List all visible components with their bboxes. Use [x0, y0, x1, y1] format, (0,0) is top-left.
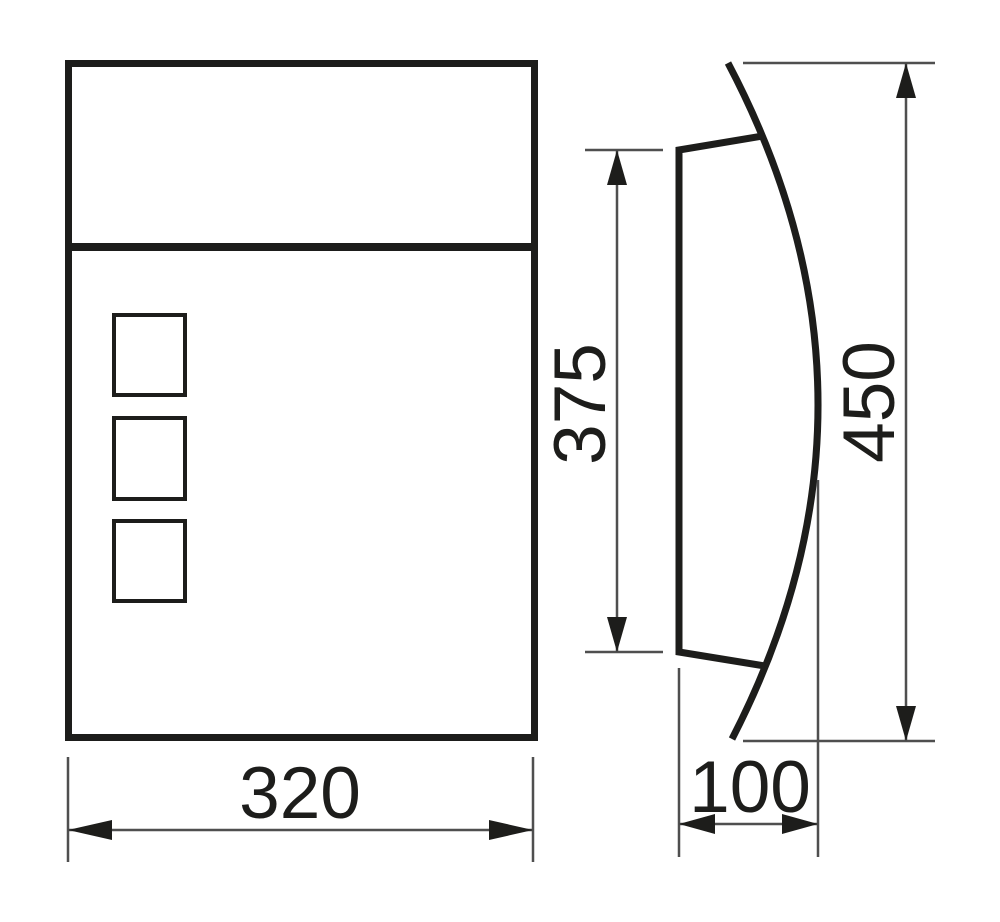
dim-front-width: 320	[68, 753, 533, 862]
side-front-curve	[728, 63, 818, 739]
arrowhead-down-icon	[896, 706, 916, 741]
dim-label-overall-height: 450	[829, 341, 910, 463]
front-view	[66, 64, 537, 738]
arrowhead-up-icon	[607, 150, 627, 185]
front-window-3	[114, 521, 185, 601]
arrowhead-down-icon	[607, 617, 627, 652]
arrowhead-right-icon	[489, 820, 533, 840]
side-view	[679, 63, 818, 739]
mailbox-technical-drawing: 320 375 450 100	[0, 0, 1000, 922]
arrowhead-up-icon	[896, 63, 916, 98]
dim-label-door-height: 375	[540, 343, 621, 465]
front-body-outline	[69, 64, 535, 738]
dim-label-depth: 100	[689, 747, 811, 828]
drawing-svg: 320 375 450 100	[0, 0, 1000, 922]
dim-depth: 100	[679, 480, 818, 857]
side-body-outline	[679, 136, 765, 666]
front-window-1	[114, 315, 185, 395]
dim-door-height: 375	[540, 150, 663, 652]
dim-label-front-width: 320	[239, 753, 361, 834]
arrowhead-left-icon	[68, 820, 112, 840]
front-window-2	[114, 418, 185, 499]
